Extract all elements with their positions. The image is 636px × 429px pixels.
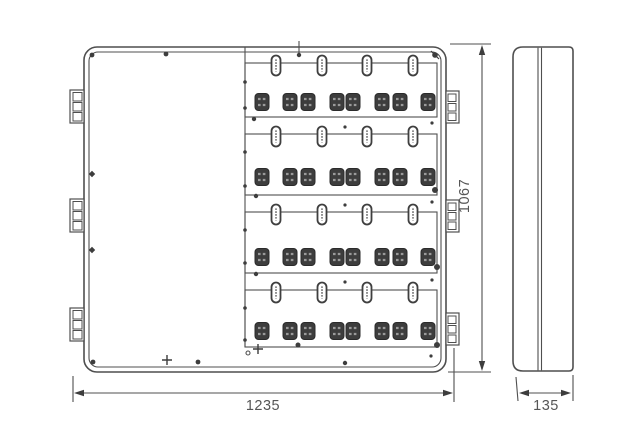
meter-window-slot [363,127,372,147]
meter-window-slot [409,283,418,303]
terminal-block [421,249,435,266]
depth-dimension: 135 [516,375,573,414]
terminal-block [346,323,360,340]
terminal-block [421,169,435,186]
terminal-block [346,169,360,186]
meter-window-slot [318,56,327,76]
terminal-block [283,323,297,340]
terminal-block [255,323,269,340]
depth-dimension-label: 135 [533,398,559,414]
terminal-block [375,94,389,111]
terminal-block [393,249,407,266]
terminal-block [330,249,344,266]
enclosure-drawing: 1235 1067 135 [0,0,636,429]
extension-line [516,377,518,401]
arrowhead-right [561,390,571,396]
meter-window-slot [272,205,281,225]
hinge-icon [70,199,84,232]
width-dimension-label: 1235 [246,398,280,414]
meter-window-slot [363,205,372,225]
terminal-block [283,249,297,266]
terminal-block [330,169,344,186]
side-view [513,47,573,371]
meter-window-slot [409,127,418,147]
terminal-block [301,323,315,340]
terminal-block [421,323,435,340]
arrowhead-up [479,45,485,55]
terminal-block [375,249,389,266]
front-view [70,41,459,372]
terminal-block [301,169,315,186]
hinge-icon [70,90,84,123]
meter-window-slot [363,56,372,76]
terminal-block [346,249,360,266]
terminal-block [255,249,269,266]
meter-window-slot [318,205,327,225]
meter-window-slot [318,127,327,147]
latch-icon [446,313,459,345]
side-outline [513,47,573,371]
arrowhead-right [443,390,453,396]
height-dimension-label: 1067 [457,179,473,213]
terminal-block [393,169,407,186]
meter-window-slot [272,127,281,147]
meter-window-slot [272,283,281,303]
technical-drawing-canvas: 1235 1067 135 [0,0,636,429]
meter-window-slot [272,56,281,76]
meter-window-slot [318,283,327,303]
terminal-block [301,94,315,111]
arrowhead-down [479,361,485,371]
terminal-block [393,323,407,340]
arrowhead-left [74,390,84,396]
terminal-block [421,94,435,111]
terminal-block [346,94,360,111]
meter-window-slot [409,205,418,225]
meter-window-slot [363,283,372,303]
terminal-block [375,169,389,186]
terminal-block [283,169,297,186]
terminal-block [375,323,389,340]
terminal-block [330,94,344,111]
terminal-block [301,249,315,266]
terminal-block [283,94,297,111]
terminal-block [393,94,407,111]
hinge-icon [70,308,84,341]
terminal-block [255,169,269,186]
terminal-block [255,94,269,111]
terminal-block [330,323,344,340]
arrowhead-left [519,390,529,396]
latch-icon [446,91,459,123]
meter-window-slot [409,56,418,76]
